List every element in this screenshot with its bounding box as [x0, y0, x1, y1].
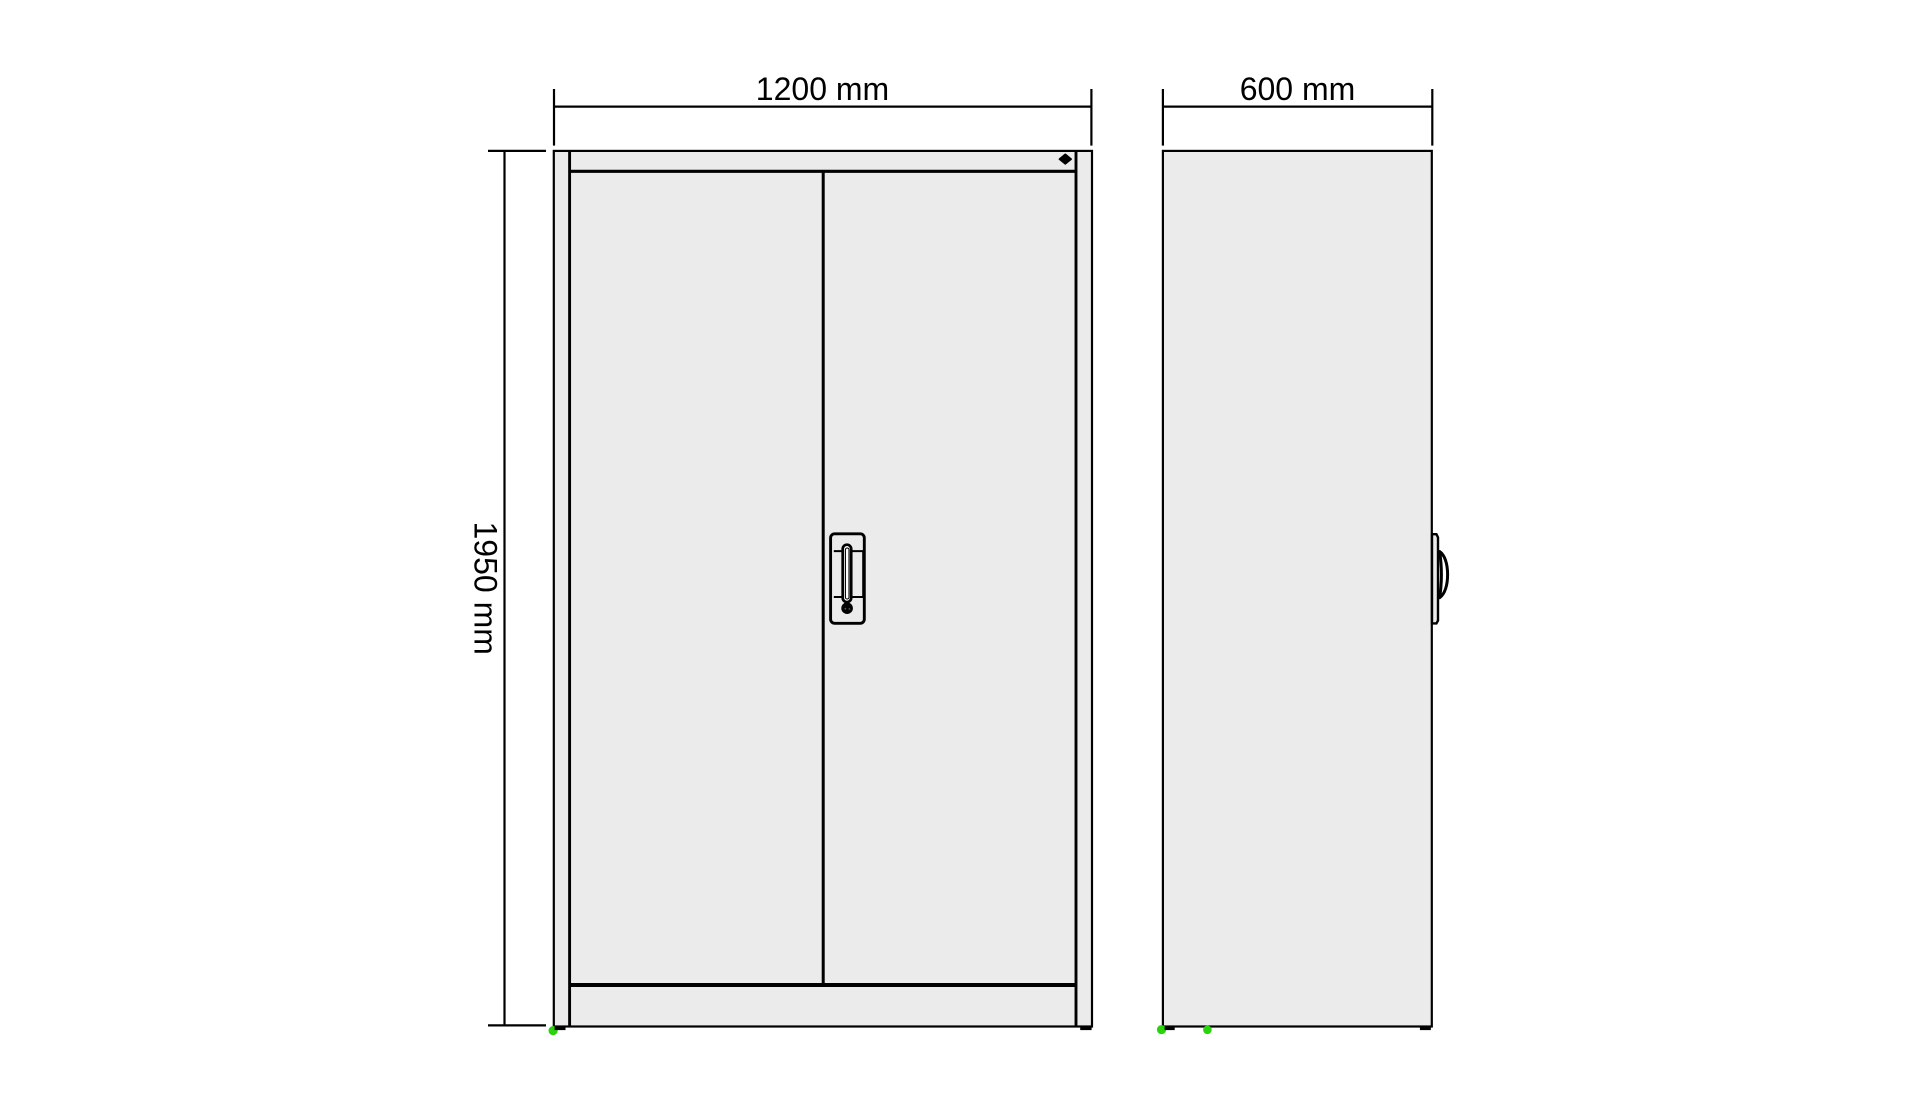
svg-text:600 mm: 600 mm: [1240, 71, 1356, 107]
svg-text:1200 mm: 1200 mm: [756, 71, 889, 107]
svg-text:1950 mm: 1950 mm: [468, 522, 504, 655]
